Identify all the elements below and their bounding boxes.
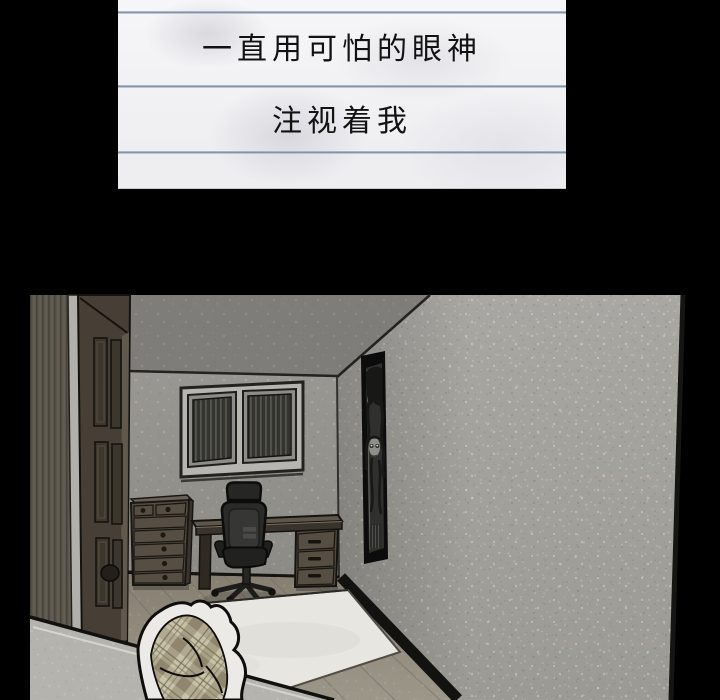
dresser bbox=[131, 495, 193, 590]
door-knob bbox=[101, 565, 119, 581]
window-pane-left bbox=[188, 392, 236, 467]
chair-headrest bbox=[227, 483, 261, 501]
door bbox=[78, 295, 130, 652]
blanket bbox=[138, 601, 246, 700]
chair-seat bbox=[223, 548, 267, 568]
room-illustration bbox=[0, 0, 720, 700]
desk-left-leg bbox=[199, 533, 211, 589]
poster bbox=[361, 351, 388, 564]
window bbox=[181, 382, 303, 481]
door-frame-wall bbox=[30, 295, 73, 660]
comic-panel: 一直用可怕的眼神 注视着我 bbox=[0, 0, 720, 700]
window-pane-right bbox=[243, 389, 296, 463]
door-area bbox=[30, 295, 130, 660]
